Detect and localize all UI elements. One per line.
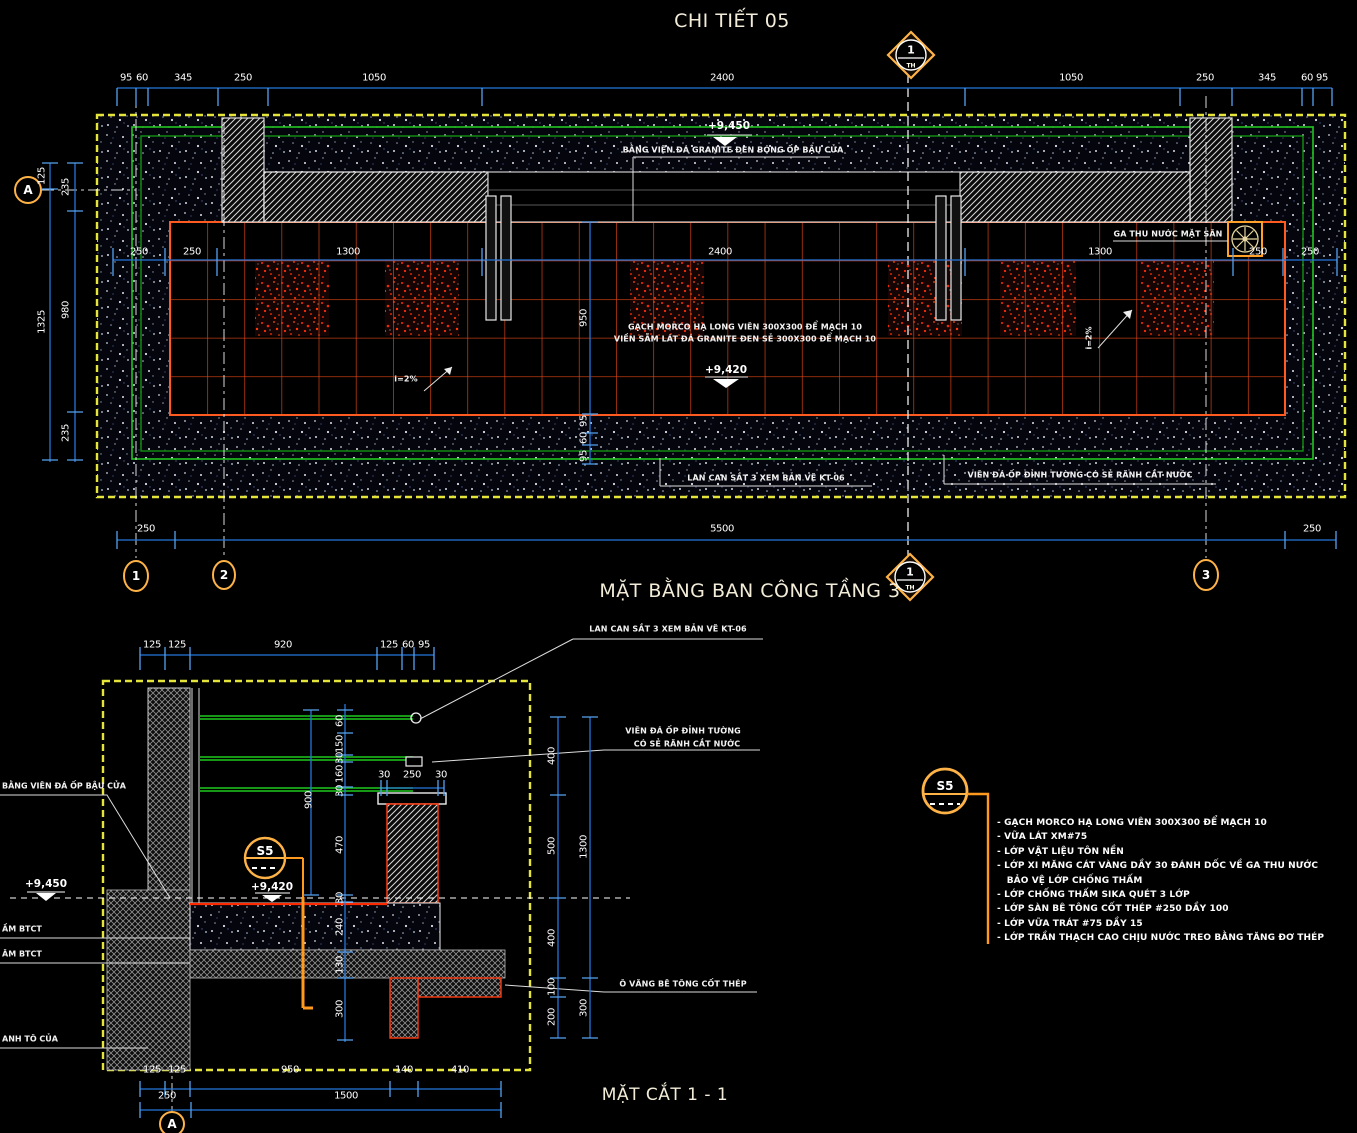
dimension-label: 250 — [1196, 73, 1214, 84]
dimension-label: 60 — [335, 715, 346, 727]
dimension-label: 470 — [335, 836, 346, 854]
dimension-label: 300 — [335, 1000, 346, 1018]
dimension-label: 1500 — [334, 1091, 358, 1102]
dimension-label: 1050 — [1059, 73, 1083, 84]
dimension-label: 60 — [579, 432, 590, 444]
dimension-label: 200 — [547, 1008, 558, 1026]
dimension-label: 235 — [61, 178, 72, 196]
note-tile-1: GẠCH MORCO HẠ LONG VIÊN 300X300 ĐỂ MẠCH … — [628, 323, 862, 332]
dimension-label: 95 — [120, 73, 132, 84]
grid-bubble-3: 3 — [1202, 568, 1210, 582]
dimension-label: 250 — [1249, 247, 1267, 258]
slope-right: i=2% — [1085, 326, 1094, 349]
level-9450-section: +9,450 — [25, 878, 67, 890]
dimension-label: 1300 — [579, 835, 590, 859]
dimension-label: 60 — [402, 640, 414, 651]
dimension-label: 250 — [130, 247, 148, 258]
grid-bubble-1: 1 — [132, 569, 140, 583]
dimension-label: 920 — [274, 640, 292, 651]
finish-tag-S5: S5 — [937, 779, 954, 793]
dimension-label: 30 — [335, 892, 346, 904]
dimension-label: 250 — [403, 770, 421, 781]
dimension-label: 100 — [547, 978, 558, 996]
dimension-label: 400 — [547, 747, 558, 765]
annotation-label: TH — [906, 63, 915, 70]
dimension-label: 1325 — [37, 310, 48, 334]
dimension-label: 980 — [61, 301, 72, 319]
note-sill-stone: BẰNG VIÊN ĐÁ ỐP BẬU CỬA — [2, 782, 126, 791]
dimension-label: 950 — [579, 309, 590, 327]
dimension-label: 125 — [143, 640, 161, 651]
cad-sheet: CHI TIẾT 05 MẶT BẰNG BAN CÔNG TẦNG 3 MẶT… — [0, 0, 1357, 1133]
dimension-label: 235 — [61, 424, 72, 442]
slope-left: i=2% — [394, 375, 417, 384]
dimension-label: 345 — [174, 73, 192, 84]
dimension-label: 250 — [158, 1091, 176, 1102]
grid-bubble-A-section: A — [167, 1117, 176, 1131]
dimension-label: 95 — [579, 450, 590, 462]
dimension-label: 125 — [168, 1065, 186, 1076]
note-canopy: Ô VĂNG BÊ TÔNG CỐT THÉP — [619, 980, 746, 989]
level-9420-plan: +9,420 — [705, 364, 747, 376]
dimension-label: 95 — [579, 415, 590, 427]
dimension-label: 500 — [547, 837, 558, 855]
dimension-label: 400 — [547, 929, 558, 947]
note-granite-sill: BẰNG VIÊN ĐÁ GRANITE ĐEN BÓNG ỐP BẬU CỬA — [623, 146, 844, 155]
dimension-label: 125 — [37, 167, 48, 185]
note-tile-2: VIỀN SẪM LÁT ĐÁ GRANITE ĐEN SẺ 300X300 Đ… — [614, 335, 876, 344]
dimension-label: 250 — [183, 247, 201, 258]
dimension-label: 150 — [335, 735, 346, 753]
dimension-label: 95 — [418, 640, 430, 651]
dimension-label: 125 — [143, 1065, 161, 1076]
dimension-label: 30 — [335, 752, 346, 764]
level-9450-plan: +9,450 — [708, 120, 750, 132]
note-door-frame: ANH TÔ CỦA — [2, 1035, 58, 1044]
note-floor-drain: GA THU NƯỚC MẶT SÂN — [1114, 230, 1223, 239]
dimension-label: 1300 — [1088, 247, 1112, 258]
dimension-label: 2400 — [708, 247, 732, 258]
dimension-label: 125 — [168, 640, 186, 651]
dimension-label: 30 — [378, 770, 390, 781]
dimension-label: 950 — [281, 1065, 299, 1076]
dimension-label: 250 — [234, 73, 252, 84]
finish-tag-S5-section: S5 — [257, 844, 274, 858]
dimension-label: 95 — [1316, 73, 1328, 84]
grid-bubble-A: A — [23, 183, 32, 197]
dimension-label: 5500 — [710, 524, 734, 535]
dimension-label: 130 — [335, 956, 346, 974]
dimension-label: 2400 — [710, 73, 734, 84]
dimension-label: 60 — [136, 73, 148, 84]
dimension-label: 30 — [435, 770, 447, 781]
note-beam-2: ÂM BTCT — [2, 950, 42, 959]
note-railing-section: LAN CAN SẮT 3 XEM BẢN VẼ KT-06 — [589, 625, 746, 634]
dimension-label: 1300 — [336, 247, 360, 258]
note-railing-plan: LAN CAN SẮT 3 XEM BẢN VẼ KT-06 — [687, 474, 844, 483]
note-coping-section-2: CÓ SẺ RÃNH CẮT NƯỚC — [634, 740, 740, 749]
dimension-label: 410 — [451, 1065, 469, 1076]
dimension-label: 140 — [395, 1065, 413, 1076]
section-mark-bottom: 1 — [906, 566, 914, 579]
dimension-label: 250 — [1303, 524, 1321, 535]
dimension-label: 125 — [380, 640, 398, 651]
dimension-label: 160 — [335, 765, 346, 783]
dimension-label: 250 — [1301, 247, 1319, 258]
dimension-label: 60 — [1301, 73, 1313, 84]
dimension-label: 250 — [137, 524, 155, 535]
dimension-label: 300 — [579, 999, 590, 1017]
dimension-label: 30 — [335, 785, 346, 797]
grid-bubble-2: 2 — [220, 568, 228, 582]
note-coping-section-1: VIÊN ĐÁ ỐP ĐỈNH TƯỜNG — [625, 727, 741, 736]
dimension-label: 900 — [304, 791, 315, 809]
level-9420-section: +9,420 — [251, 881, 293, 893]
annotation-label: TH — [905, 585, 914, 592]
dimension-label: 345 — [1258, 73, 1276, 84]
dimension-label: 1050 — [362, 73, 386, 84]
dimension-label: 240 — [335, 918, 346, 936]
note-coping-plan: VIÊN ĐÁ ỐP ĐỈNH TƯỜNG CÓ SẺ RÃNH CẮT NƯỚ… — [968, 471, 1193, 480]
section-mark-top: 1 — [907, 44, 915, 57]
note-beam-1: ẦM BTCT — [2, 925, 42, 934]
labels-layer: 9560345250105024001050250345609525025013… — [0, 0, 1357, 1133]
